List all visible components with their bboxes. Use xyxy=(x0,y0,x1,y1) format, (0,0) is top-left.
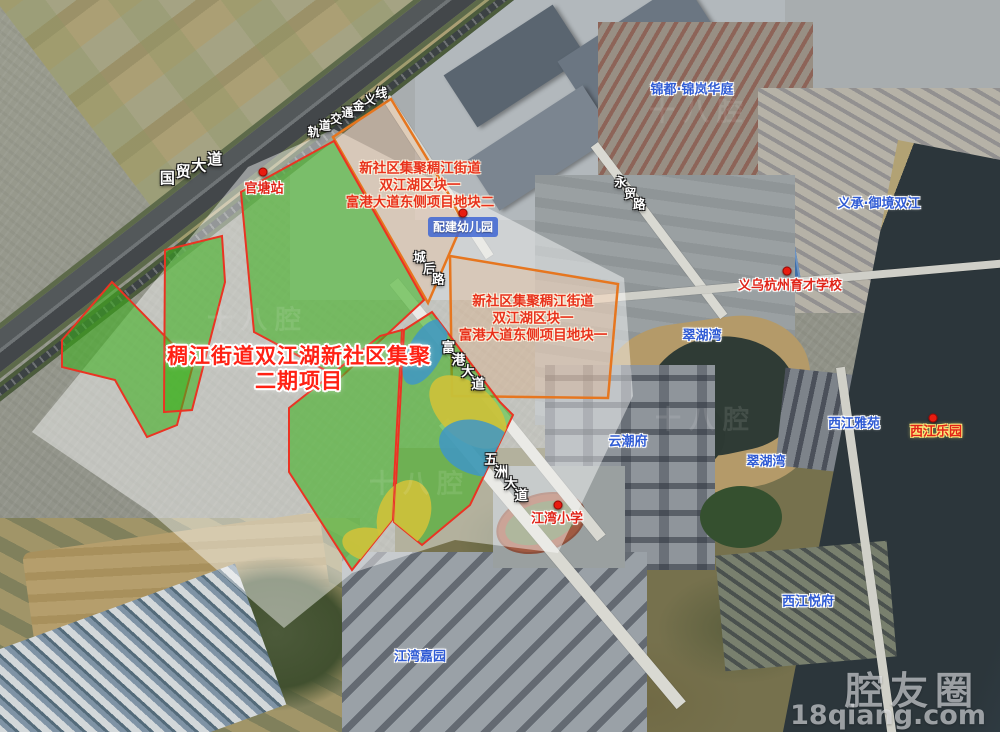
planning-overlay xyxy=(0,0,1000,732)
parcel-annotation-block2: 新社区集聚稠江街道 双江湖区块一 富港大道东侧项目地块二 xyxy=(346,161,495,212)
annotation-line: 富港大道东侧项目地块一 xyxy=(459,328,608,345)
park-marker-dot xyxy=(929,414,938,423)
annotation-line: 双江湖区块一 xyxy=(346,178,495,195)
tile-watermark: 十八腔 xyxy=(655,400,757,437)
station-marker-dot xyxy=(259,168,268,177)
poi-label-yucai-school: 义乌杭州育才学校 xyxy=(738,275,842,294)
annotation-line: 双江湖区块一 xyxy=(459,311,608,328)
tile-watermark: 十八腔 xyxy=(369,464,471,501)
primary-school-marker-dot xyxy=(554,501,563,510)
community-label-cuihu-north: 翠湖湾 xyxy=(682,325,721,344)
annotation-line: 富港大道东侧项目地块二 xyxy=(346,195,495,212)
satellite-map: 国贸大道 轨道交通金义线 城后路 永贸路 富港大道 五洲大道 官塘站 新社区集聚… xyxy=(0,0,1000,732)
project-title: 稠江街道双江湖新社区集聚 二期项目 xyxy=(167,344,431,394)
annotation-line: 新社区集聚稠江街道 xyxy=(459,294,608,311)
community-label-yicheng: 义承·御境双江 xyxy=(838,193,921,212)
school-marker-dot xyxy=(783,267,792,276)
poi-label-jiangwan-primary: 江湾小学 xyxy=(531,508,583,527)
community-label-yunchao: 云潮府 xyxy=(608,431,647,450)
tile-watermark: 十八腔 xyxy=(649,92,751,129)
site-watermark-url: 18qiang.com xyxy=(790,700,986,731)
tile-watermark: 十八腔 xyxy=(207,300,309,337)
kindergarten-badge: 配建幼儿园 xyxy=(428,217,498,237)
annotation-line: 新社区集聚稠江街道 xyxy=(346,161,495,178)
community-label-xijiang-yayuan: 西江雅苑 xyxy=(828,413,880,432)
community-label-cuihu-south: 翠湖湾 xyxy=(746,451,785,470)
project-title-line2: 二期项目 xyxy=(167,369,431,394)
station-label-guantang: 官塘站 xyxy=(244,178,283,197)
parcel-annotation-block1: 新社区集聚稠江街道 双江湖区块一 富港大道东侧项目地块一 xyxy=(459,294,608,345)
community-label-jiangwan-jiayuan: 江湾嘉园 xyxy=(394,646,446,665)
project-title-line1: 稠江街道双江湖新社区集聚 xyxy=(167,344,431,369)
kindergarten-marker-dot xyxy=(459,209,468,218)
poi-label-xijiang-park: 西江乐园 xyxy=(910,421,962,440)
community-label-xijiang-yuefu: 西江悦府 xyxy=(782,591,834,610)
